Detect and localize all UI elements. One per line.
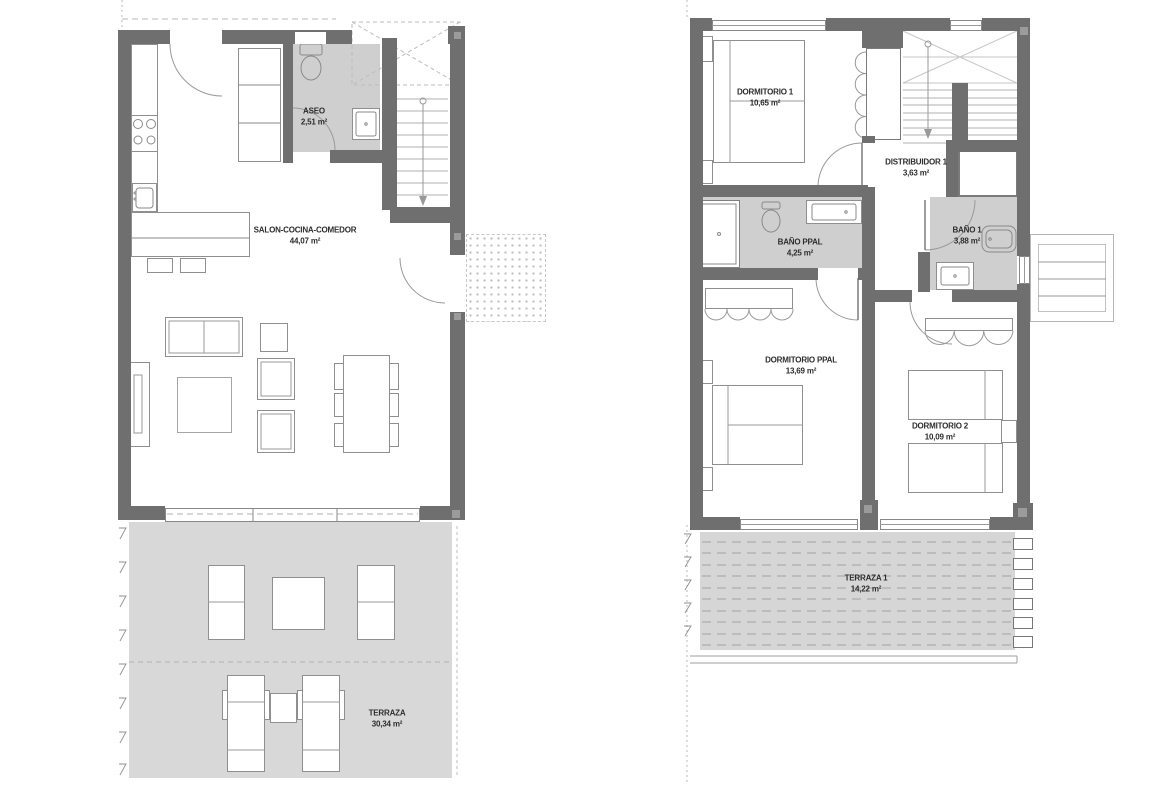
wall <box>946 143 958 197</box>
wall <box>382 38 397 210</box>
room-area: 30,34 m² <box>369 719 406 730</box>
room-name: DORMITORIO 2 <box>912 422 968 433</box>
section-cut-marks <box>119 528 691 775</box>
stair-upper-flight-ground <box>352 22 460 85</box>
linework <box>0 0 1170 785</box>
room-area: 3,63 m² <box>885 168 947 179</box>
wall <box>952 83 968 143</box>
kitchen-fixture-lines <box>131 85 281 238</box>
room-area: 14,22 m² <box>845 584 888 595</box>
wall <box>118 506 165 520</box>
floor-plan-sheet: ASEO 2,51 m² SALON-COCINA-COMEDOR 44,07 … <box>0 0 1170 785</box>
pilaster-inset <box>452 510 460 518</box>
wall <box>952 290 1017 302</box>
wall <box>690 18 703 530</box>
wall <box>1017 18 1030 256</box>
wall <box>690 517 740 530</box>
wall <box>118 30 170 44</box>
room-name: TERRAZA 1 <box>845 574 888 585</box>
wall <box>862 280 875 517</box>
room-area: 2,51 m² <box>301 117 327 128</box>
pilaster-inset <box>1020 27 1028 35</box>
pilaster-inset <box>1018 508 1027 517</box>
room-area: 10,09 m² <box>912 432 968 443</box>
pilaster-inset <box>864 505 872 513</box>
room-name: DORMITORIO PPAL <box>765 356 837 367</box>
room-area: 3,88 m² <box>952 236 981 247</box>
room-area: 44,07 m² <box>254 236 357 247</box>
room-label-dormitorio2: DORMITORIO 2 10,09 m² <box>912 422 968 443</box>
wall <box>283 150 293 163</box>
room-name: BAÑO 1 <box>952 226 981 237</box>
stair-upper-flight-first <box>903 31 1017 83</box>
pilaster-inset <box>454 233 461 240</box>
wall <box>390 207 465 223</box>
wall <box>875 290 912 302</box>
wall <box>862 187 875 197</box>
wall <box>690 18 712 31</box>
room-label-dormitorio1: DORMITORIO 1 10,65 m² <box>737 88 793 109</box>
wall <box>862 197 875 280</box>
room-label-dormitorio-ppal: DORMITORIO PPAL 13,69 m² <box>765 356 837 377</box>
room-label-terraza1: TERRAZA 1 14,22 m² <box>845 574 888 595</box>
room-name: DORMITORIO 1 <box>737 88 793 99</box>
room-label-distribuidor1: DISTRIBUIDOR 1 3,63 m² <box>885 158 947 179</box>
wall <box>862 31 903 48</box>
wall <box>283 44 293 152</box>
wall <box>118 30 131 520</box>
wall <box>222 30 352 44</box>
room-area: 13,69 m² <box>765 366 837 377</box>
room-label-bano-ppal: BAÑO PPAL 4,25 m² <box>778 238 823 259</box>
wall <box>918 252 930 292</box>
wall <box>703 268 818 280</box>
wall <box>703 185 868 197</box>
pilaster-inset <box>454 313 461 320</box>
wall <box>1017 284 1030 530</box>
room-name: ASEO <box>301 107 327 118</box>
pilaster-inset <box>454 32 461 39</box>
wall <box>826 18 950 31</box>
room-name: TERRAZA <box>369 709 406 720</box>
room-area: 10,65 m² <box>737 98 793 109</box>
wall <box>450 312 465 520</box>
room-label-salon: SALON-COCINA-COMEDOR 44,07 m² <box>254 226 357 247</box>
dashed-guides <box>122 0 687 785</box>
room-label-terraza: TERRAZA 30,34 m² <box>369 709 406 730</box>
room-area: 4,25 m² <box>778 248 823 259</box>
stair-direction-ground <box>419 98 427 206</box>
room-name: SALON-COCINA-COMEDOR <box>254 226 357 237</box>
wall <box>862 136 875 143</box>
terrace-rail <box>690 656 1017 663</box>
room-label-bano1: BAÑO 1 3,88 m² <box>952 226 981 247</box>
window-center-lines <box>167 26 1025 525</box>
room-name: DISTRIBUIDOR 1 <box>885 158 947 169</box>
room-name: BAÑO PPAL <box>778 238 823 249</box>
room-label-aseo: ASEO 2,51 m² <box>301 107 327 128</box>
wc-niche <box>295 32 326 44</box>
